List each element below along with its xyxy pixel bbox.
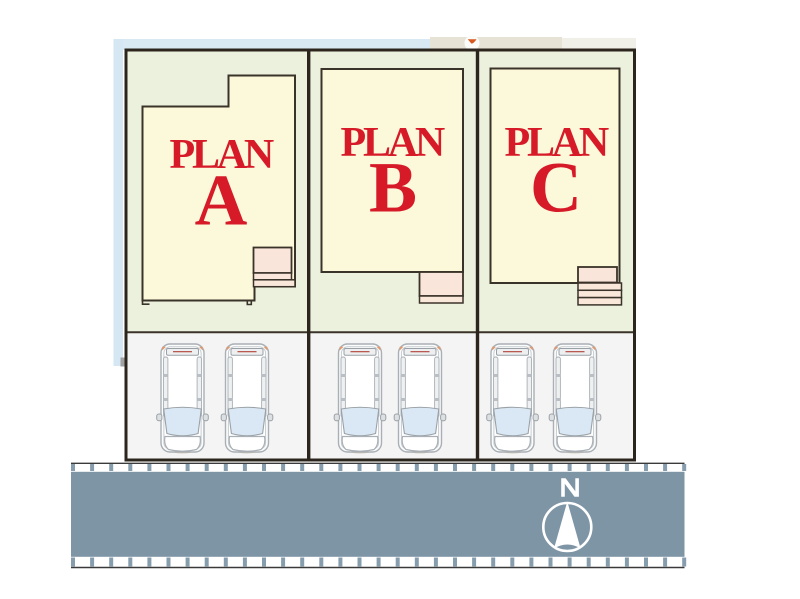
svg-text:B: B — [369, 148, 417, 228]
svg-text:C: C — [530, 148, 582, 228]
svg-text:A: A — [195, 160, 248, 241]
